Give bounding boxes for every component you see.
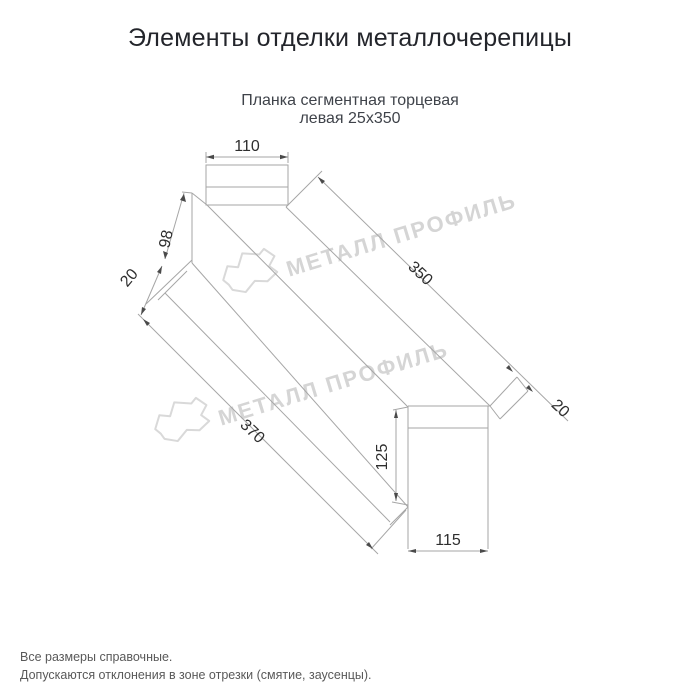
dim-bottom-width-label: 115: [435, 532, 461, 549]
watermark-1: МЕТАЛЛ ПРОФИЛЬ: [217, 172, 519, 300]
watermark-text: МЕТАЛЛ ПРОФИЛЬ: [283, 188, 519, 282]
watermark-text: МЕТАЛЛ ПРОФИЛЬ: [215, 337, 451, 431]
metall-profil-logo-cloud-icon: [149, 394, 214, 447]
dim-left-flange-label: 20: [117, 266, 142, 291]
footnote-line-1: Все размеры справочные.: [20, 648, 372, 666]
dim-left-end-height-label: 98: [156, 228, 176, 249]
footnotes: Все размеры справочные. Допускаются откл…: [20, 648, 372, 684]
dim-top-width-label: 110: [234, 138, 260, 155]
footnote-line-2: Допускаются отклонения в зоне отрезки (с…: [20, 666, 372, 684]
dim-length-top-label: 350: [405, 258, 436, 289]
technical-drawing: МЕТАЛЛ ПРОФИЛЬ МЕТАЛЛ ПРОФИЛЬ: [0, 0, 700, 700]
dim-right-flange-label: 20: [548, 396, 573, 421]
dim-right-end-height-label: 125: [374, 444, 391, 471]
flange-edge: [165, 293, 390, 522]
left-end-top-face: [206, 165, 288, 205]
